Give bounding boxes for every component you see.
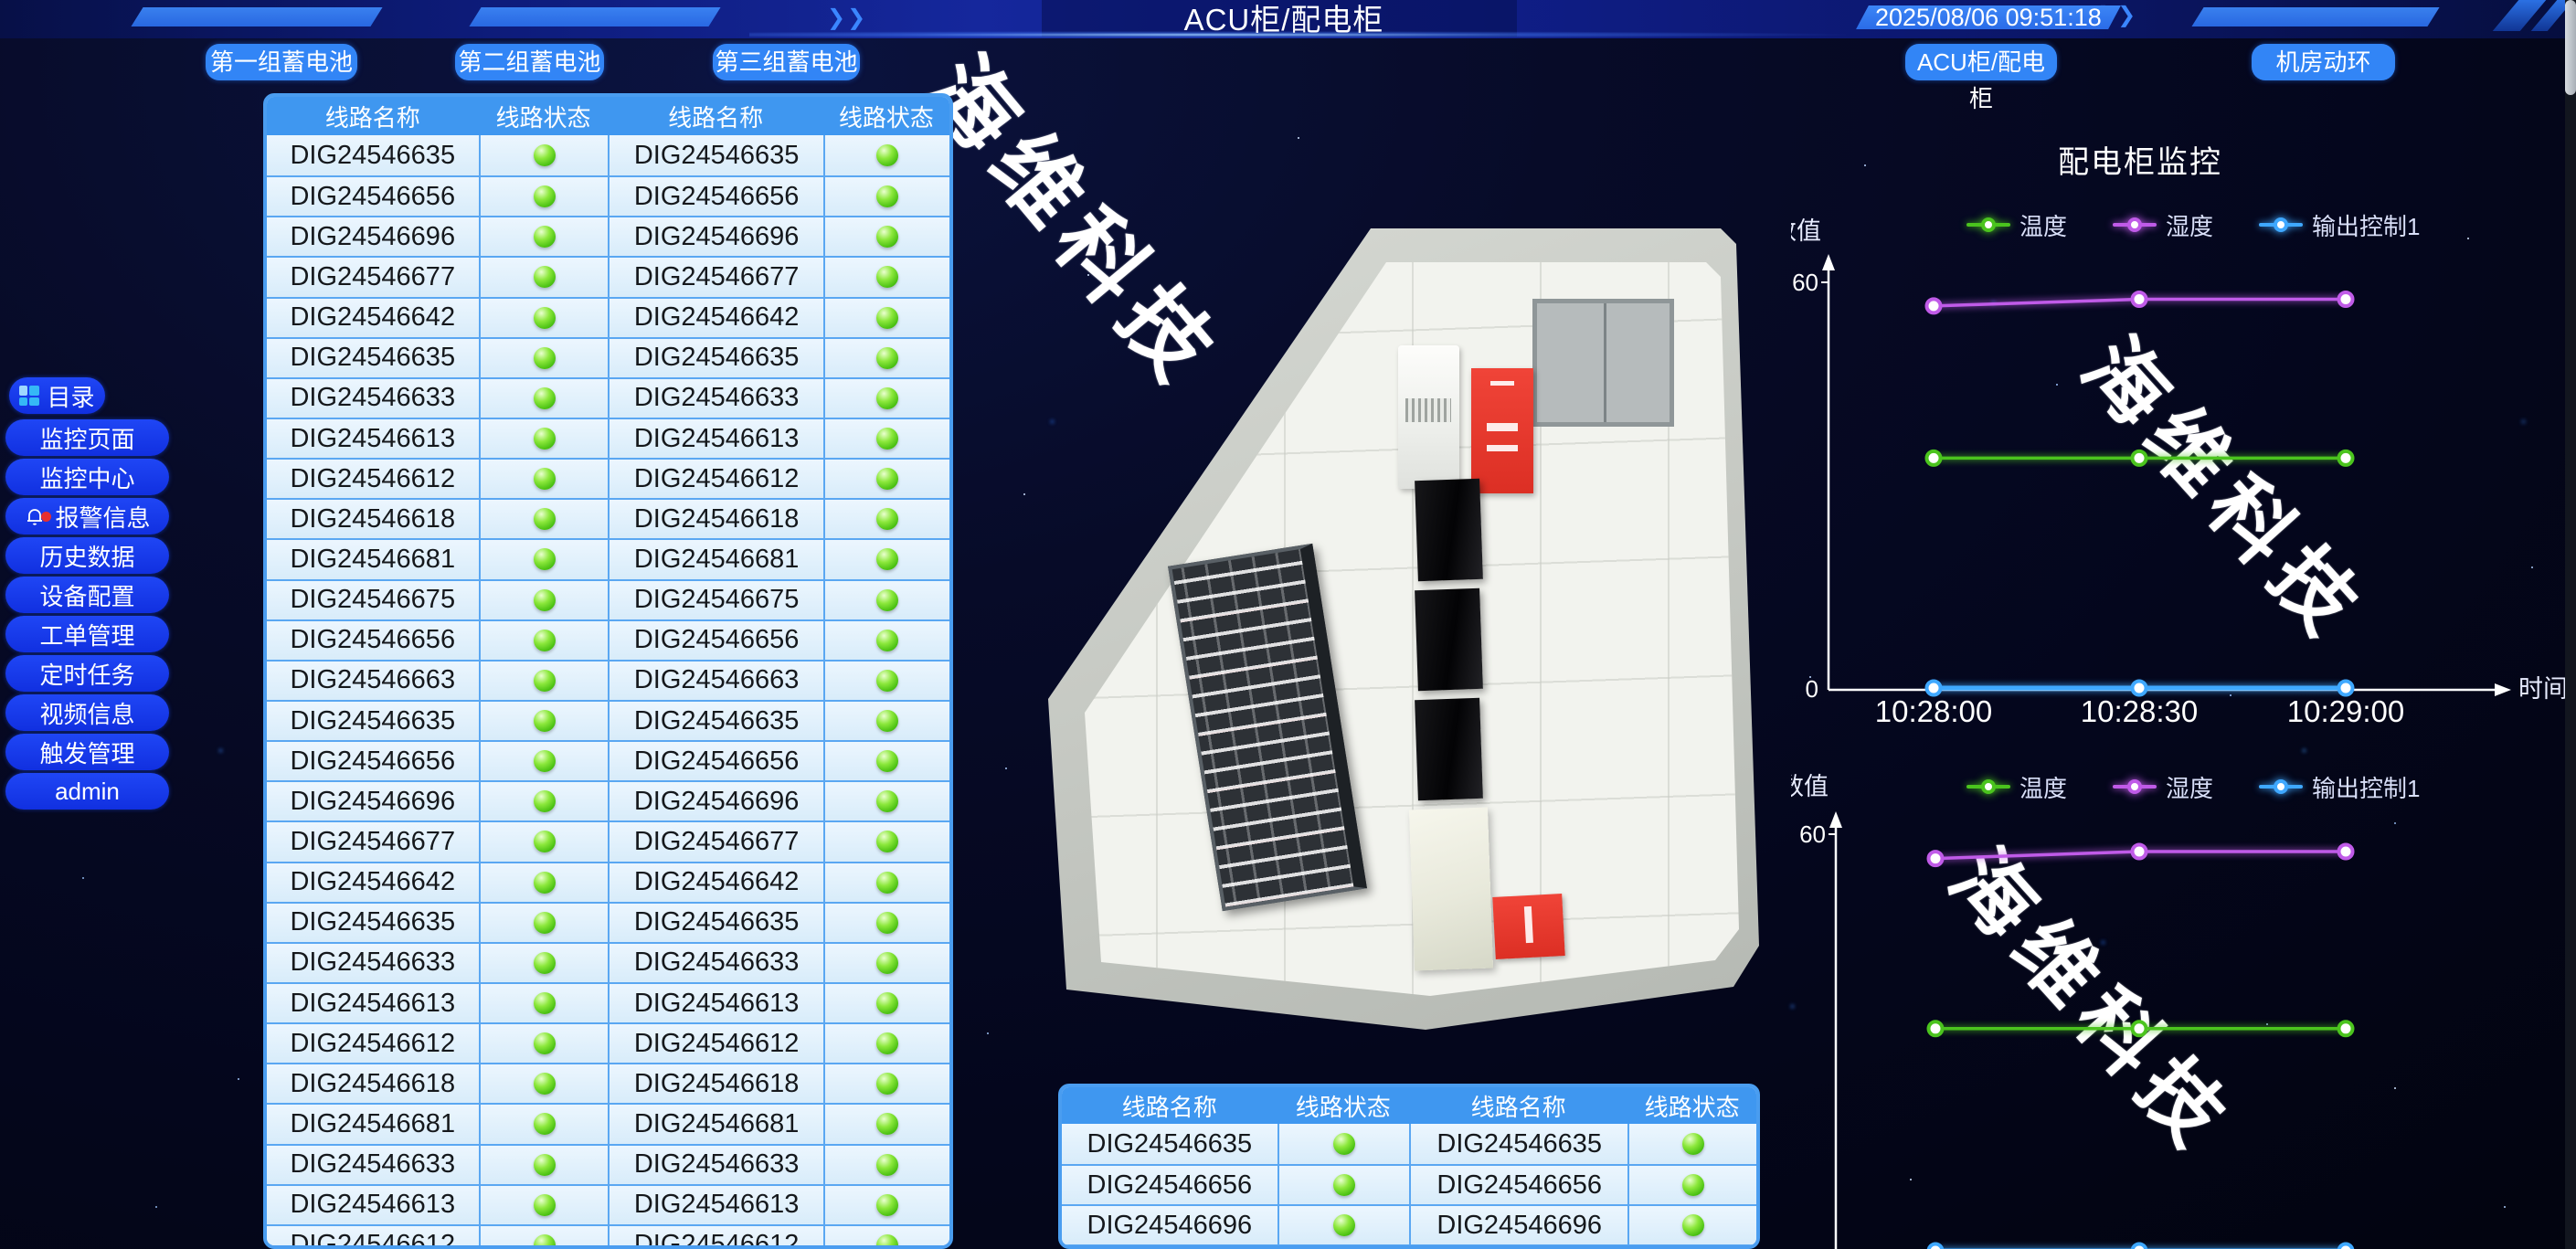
table-header-row: 线路名称 线路状态 线路名称 线路状态 [1062,1087,1756,1124]
line-status-cell [479,742,609,780]
status-ok-dot [534,347,556,369]
column-header: 线路状态 [1627,1087,1756,1124]
status-ok-dot [876,548,898,570]
status-ok-dot [1682,1133,1704,1155]
svg-text:数值: 数值 [1791,773,1829,800]
line-status-cell [823,379,949,418]
line-status-cell [823,135,949,175]
line-name-cell: DIG24546642 [267,863,479,902]
line-status-cell [479,500,609,538]
line-name-cell: DIG24546656 [1409,1166,1627,1204]
status-ok-dot [534,185,556,207]
line-name-cell: DIG24546635 [267,135,479,175]
status-ok-dot [876,872,898,894]
status-ok-dot [876,670,898,692]
status-ok-dot [876,185,898,207]
line-name-cell: DIG24546612 [608,1226,822,1249]
table-row: DIG24546613DIG24546613 [267,1184,949,1224]
table-row: DIG24546642DIG24546642 [267,297,949,337]
table-row: DIG24546656DIG24546656 [267,740,949,780]
table-row: DIG24546656DIG24546656 [267,175,949,216]
line-name-cell: DIG24546656 [608,621,822,660]
status-ok-dot [534,872,556,894]
table-row: DIG24546635DIG24546635 [1062,1124,1756,1164]
status-ok-dot [534,266,556,288]
status-ok-dot [876,1234,898,1249]
line-status-cell [823,177,949,216]
table-row: DIG24546656DIG24546656 [267,619,949,660]
line-name-cell: DIG24546642 [608,299,822,337]
line-status-cell [479,1226,609,1249]
line-status-cell [823,984,949,1022]
battery-group-1-button[interactable]: 第一组蓄电池 [206,44,357,80]
room-door [1532,299,1674,427]
status-ok-dot [876,1154,898,1176]
status-ok-dot [534,307,556,329]
line-name-cell: DIG24546613 [267,419,479,458]
table-row: DIG24546635DIG24546635 [267,337,949,377]
line-status-cell [479,702,609,740]
line-status-cell [479,299,609,337]
svg-text:0: 0 [1806,675,1818,703]
line-name-cell: DIG24546612 [608,1024,822,1063]
line-name-cell: DIG24546635 [1409,1124,1627,1164]
table-row: DIG24546612DIG24546612 [267,1224,949,1249]
status-ok-dot [534,468,556,490]
column-header: 线路状态 [479,97,609,135]
alarm-badge [41,512,51,522]
line-status-cell [479,1064,609,1103]
line-name-cell: DIG24546633 [608,1146,822,1184]
line-status-cell [823,500,949,538]
column-header: 线路状态 [1277,1087,1409,1124]
line-name-cell: DIG24546635 [267,904,479,942]
status-ok-dot [1333,1174,1355,1196]
line-status-cell [823,742,949,780]
scrollbar-track[interactable] [2565,0,2576,1249]
column-header: 线路状态 [823,97,949,135]
line-status-cell [823,339,949,377]
line-status-cell [823,702,949,740]
line-status-cell [823,621,949,660]
status-ok-dot [876,790,898,812]
status-ok-dot [876,710,898,732]
line-status-cell [823,782,949,820]
table-row: DIG24546633DIG24546633 [267,942,949,982]
status-ok-dot [534,589,556,611]
line-status-cell [479,1146,609,1184]
header-decor-parallelogram [131,7,382,26]
line-status-cell [1627,1206,1756,1244]
line-name-cell: DIG24546656 [608,177,822,216]
table-row: DIG24546612DIG24546612 [267,458,949,498]
line-name-cell: DIG24546635 [608,702,822,740]
table-row: DIG24546613DIG24546613 [267,418,949,458]
line-status-cell [479,419,609,458]
line-status-cell [479,1105,609,1143]
line-status-cell [823,258,949,296]
circuit-status-table-bottom: 线路名称 线路状态 线路名称 线路状态 DIG24546635DIG245466… [1058,1084,1760,1249]
column-header: 线路名称 [1409,1087,1627,1124]
line-name-cell: DIG24546613 [608,984,822,1022]
line-status-cell [479,782,609,820]
status-ok-dot [876,1113,898,1135]
line-name-cell: DIG24546635 [608,904,822,942]
status-ok-dot [534,952,556,974]
status-ok-dot [876,468,898,490]
table-row: DIG24546656DIG24546656 [1062,1164,1756,1204]
table-row: DIG24546677DIG24546677 [267,256,949,296]
line-name-cell: DIG24546635 [608,339,822,377]
status-ok-dot [1682,1174,1704,1196]
line-name-cell: DIG24546656 [267,177,479,216]
line-status-cell [823,1105,949,1143]
status-ok-dot [534,1032,556,1054]
line-name-cell: DIG24546656 [267,742,479,780]
line-name-cell: DIG24546612 [267,1024,479,1063]
table-header-row: 线路名称 线路状态 线路名称 线路状态 [267,97,949,135]
status-ok-dot [1682,1214,1704,1236]
line-status-cell [823,217,949,256]
line-status-cell [823,863,949,902]
svg-text:60: 60 [1792,269,1818,296]
line-name-cell: DIG24546642 [608,863,822,902]
status-ok-dot [876,912,898,934]
status-ok-dot [876,831,898,852]
line-status-cell [823,904,949,942]
svg-text:10:28:00: 10:28:00 [1875,694,1992,728]
line-status-cell [479,581,609,619]
sidebar-item-monitor-page[interactable]: 监控页面 [5,419,169,456]
air-conditioner-unit [1398,345,1459,489]
acu-cabinet-tab-button[interactable]: ACU柜/配电柜 [1905,44,2057,80]
server-rack [1415,698,1483,800]
table-row: DIG24546675DIG24546675 [267,579,949,619]
status-ok-dot [876,387,898,409]
status-ok-dot [876,428,898,450]
line-name-cell: DIG24546677 [608,258,822,296]
line-name-cell: DIG24546696 [267,782,479,820]
status-ok-dot [876,144,898,166]
column-header: 线路名称 [1062,1087,1277,1124]
status-ok-dot [876,266,898,288]
table-row: DIG24546663DIG24546663 [267,660,949,700]
line-status-cell [823,1186,949,1224]
status-ok-dot [534,428,556,450]
status-ok-dot [876,347,898,369]
fire-cabinet [1471,368,1533,493]
line-name-cell: DIG24546618 [267,1064,479,1103]
line-name-cell: DIG24546696 [1062,1206,1277,1244]
line-status-cell [479,944,609,982]
line-name-cell: DIG24546696 [267,217,479,256]
line-name-cell: DIG24546633 [267,1146,479,1184]
table-row: DIG24546681DIG24546681 [267,1103,949,1143]
line-status-cell [479,904,609,942]
line-name-cell: DIG24546675 [608,581,822,619]
table-body: DIG24546635DIG24546635DIG24546656DIG2454… [1062,1124,1756,1249]
table-row: DIG24546633DIG24546633 [267,1144,949,1184]
battery-group-3-button[interactable]: 第三组蓄电池 [713,44,860,80]
status-ok-dot [534,508,556,530]
status-ok-dot [1333,1214,1355,1236]
line-status-cell [479,177,609,216]
line-status-cell [823,662,949,700]
line-status-cell [823,540,949,578]
status-ok-dot [534,750,556,772]
table-row: DIG24546696DIG24546696 [267,780,949,820]
status-ok-dot [534,1154,556,1176]
scrollbar-thumb[interactable] [2565,0,2576,95]
line-name-cell: DIG24546677 [267,258,479,296]
line-name-cell: DIG24546677 [608,822,822,861]
fire-cabinet [1492,894,1564,959]
status-ok-dot [534,1234,556,1249]
line-status-cell [823,460,949,498]
line-name-cell: DIG24546635 [267,339,479,377]
line-name-cell: DIG24546681 [267,1105,479,1143]
status-ok-dot [876,630,898,651]
line-name-cell: DIG24546681 [608,540,822,578]
status-ok-dot [876,952,898,974]
status-ok-dot [534,831,556,852]
line-status-cell [823,581,949,619]
line-name-cell: DIG24546618 [267,500,479,538]
column-header: 线路名称 [267,97,479,135]
line-status-cell [823,1146,949,1184]
table-row: DIG24546696DIG24546696 [1062,1204,1756,1244]
table-row [1062,1244,1756,1249]
line-status-cell [823,1064,949,1103]
line-name-cell: DIG24546612 [267,1226,479,1249]
battery-group-2-button[interactable]: 第二组蓄电池 [455,44,604,80]
table-row: DIG24546635DIG24546635 [267,135,949,175]
line-name-cell: DIG24546681 [267,540,479,578]
line-name-cell: DIG24546656 [1062,1166,1277,1204]
status-ok-dot [876,750,898,772]
line-status-cell [479,1186,609,1224]
sidebar-item-work-order[interactable]: 工单管理 [5,616,169,652]
line-status-cell [479,135,609,175]
line-name-cell: DIG24546663 [608,662,822,700]
line-status-cell [479,540,609,578]
dashboard-root: ❯❯ ❯❯ ACU柜/配电柜 2025/08/06 09:51:18 第一组蓄电… [0,0,2576,1249]
table-row: DIG24546696DIG24546696 [267,216,949,256]
status-ok-dot [534,226,556,248]
table-row: DIG24546642DIG24546642 [267,862,949,902]
line-name-cell: DIG24546613 [608,1186,822,1224]
line-status-cell [823,944,949,982]
distribution-cabinet-chart-2: 60数值 [1791,749,2576,1249]
svg-text:60: 60 [1799,820,1826,848]
line-status-cell [479,460,609,498]
header-decor-parallelogram [469,7,720,26]
svg-text:时间: 时间 [2518,675,2568,703]
status-ok-dot [876,226,898,248]
line-status-cell [479,379,609,418]
status-ok-dot [876,508,898,530]
sidebar-item-admin[interactable]: admin [5,773,169,810]
line-status-cell [1277,1166,1409,1204]
machine-room-tab-button[interactable]: 机房动环 [2252,44,2395,80]
line-name-cell: DIG24546681 [608,1105,822,1143]
sidebar-item-alarm-info[interactable]: 报警信息 [5,498,169,535]
line-name-cell: DIG24546675 [267,581,479,619]
line-status-cell [479,339,609,377]
status-ok-dot [534,548,556,570]
status-ok-dot [534,992,556,1014]
menu-grid-icon [19,386,39,406]
status-ok-dot [876,307,898,329]
svg-text:10:28:30: 10:28:30 [2081,694,2198,728]
line-name-cell: DIG24546633 [267,944,479,982]
line-status-cell [1277,1206,1409,1244]
line-status-cell [1627,1124,1756,1164]
sidebar-item-catalog[interactable]: 目录 [9,377,105,414]
table-row: DIG24546677DIG24546677 [267,820,949,861]
status-ok-dot [534,912,556,934]
line-name-cell: DIG24546663 [267,662,479,700]
line-name-cell: DIG24546696 [608,217,822,256]
line-name-cell: DIG24546618 [608,500,822,538]
sidebar-item-video-info[interactable]: 视频信息 [5,694,169,731]
table-row: DIG24546612DIG24546612 [267,1022,949,1063]
status-ok-dot [534,790,556,812]
status-ok-dot [534,144,556,166]
line-status-cell [1277,1124,1409,1164]
line-name-cell: DIG24546633 [267,379,479,418]
line-name-cell: DIG24546635 [1062,1124,1277,1164]
header-decor-parallelogram [2191,7,2439,26]
table-row: DIG24546618DIG24546618 [267,498,949,538]
status-ok-dot [876,1073,898,1095]
status-ok-dot [876,1194,898,1216]
table-row: DIG24546613DIG24546613 [267,982,949,1022]
line-name-cell: DIG24546612 [267,460,479,498]
status-ok-dot [1333,1133,1355,1155]
sidebar-item-scheduled-task[interactable]: 定时任务 [5,655,169,692]
cabinet-box [1409,808,1493,971]
table-row: DIG24546633DIG24546633 [267,377,949,418]
line-status-cell [479,1024,609,1063]
line-status-cell [823,1226,949,1249]
line-status-cell [479,258,609,296]
sidebar-item-monitor-center[interactable]: 监控中心 [5,459,169,495]
line-status-cell [479,621,609,660]
status-ok-dot [876,992,898,1014]
sidebar-item-device-config[interactable]: 设备配置 [5,577,169,613]
line-status-cell [479,822,609,861]
table-row: DIG24546635DIG24546635 [267,700,949,740]
machine-room-3d-view[interactable] [1028,224,1800,1037]
table-row: DIG24546681DIG24546681 [267,538,949,578]
circuit-status-table: 线路名称 线路状态 线路名称 线路状态 DIG24546635DIG245466… [263,93,953,1249]
distribution-cabinet-chart-1: 60数值010:28:0010:28:3010:29:00时间 [1791,128,2576,731]
line-status-cell [823,419,949,458]
table-row: DIG24546618DIG24546618 [267,1063,949,1103]
line-status-cell [479,217,609,256]
line-name-cell: DIG24546677 [267,822,479,861]
status-ok-dot [534,1113,556,1135]
line-status-cell [479,984,609,1022]
line-name-cell: DIG24546656 [267,621,479,660]
line-status-cell [823,1024,949,1063]
sidebar-item-trigger-manage[interactable]: 触发管理 [5,734,169,770]
header-timestamp: 2025/08/06 09:51:18 [1856,5,2121,29]
chevron-decor-icon: ❯❯ [827,5,867,31]
line-name-cell: DIG24546633 [608,944,822,982]
line-name-cell: DIG24546613 [267,984,479,1022]
line-status-cell [823,299,949,337]
server-rack [1415,588,1483,691]
svg-text:数值: 数值 [1791,217,1821,245]
line-status-cell [479,863,609,902]
line-name-cell: DIG24546635 [608,135,822,175]
svg-text:10:29:00: 10:29:00 [2287,694,2404,728]
line-name-cell: DIG24546618 [608,1064,822,1103]
sidebar-item-history-data[interactable]: 历史数据 [5,537,169,574]
status-ok-dot [534,670,556,692]
status-ok-dot [534,387,556,409]
line-name-cell: DIG24546696 [1409,1206,1627,1244]
status-ok-dot [876,1032,898,1054]
status-ok-dot [534,710,556,732]
line-name-cell: DIG24546612 [608,460,822,498]
status-ok-dot [534,630,556,651]
line-name-cell: DIG24546613 [267,1186,479,1224]
table-row: DIG24546635DIG24546635 [267,902,949,942]
line-name-cell: DIG24546613 [608,419,822,458]
status-ok-dot [534,1194,556,1216]
line-status-cell [1627,1166,1756,1204]
line-name-cell: DIG24546633 [608,379,822,418]
table-body: DIG24546635DIG24546635DIG24546656DIG2454… [267,135,949,1249]
line-name-cell: DIG24546696 [608,782,822,820]
line-name-cell: DIG24546635 [267,702,479,740]
column-header: 线路名称 [608,97,822,135]
bell-icon [24,505,48,527]
line-name-cell: DIG24546642 [267,299,479,337]
line-status-cell [823,822,949,861]
page-title: ACU柜/配电柜 [1147,4,1421,37]
line-status-cell [479,662,609,700]
line-name-cell: DIG24546656 [608,742,822,780]
server-rack [1415,479,1483,581]
status-ok-dot [876,589,898,611]
status-ok-dot [534,1073,556,1095]
